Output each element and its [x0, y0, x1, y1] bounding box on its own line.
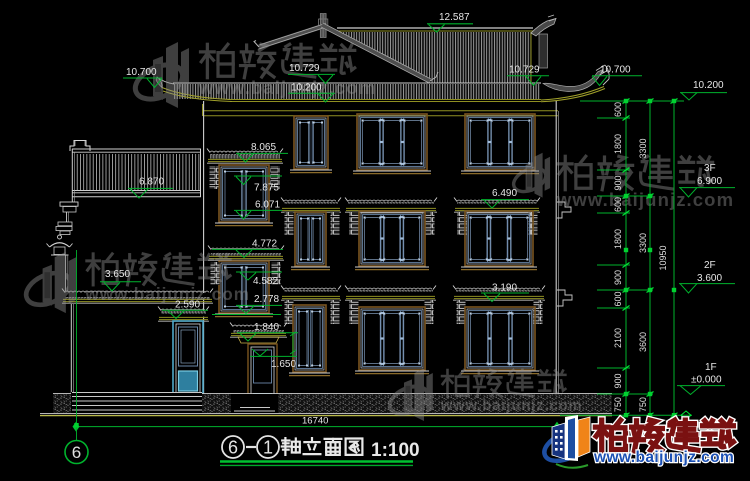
svg-text:4.772: 4.772: [252, 239, 277, 250]
svg-text:10.700: 10.700: [126, 67, 157, 78]
svg-text:750: 750: [613, 397, 623, 412]
svg-text:2.590: 2.590: [175, 300, 200, 311]
svg-text:1800: 1800: [613, 134, 623, 154]
svg-text:3.650: 3.650: [105, 269, 130, 280]
svg-text:3300: 3300: [638, 138, 648, 158]
svg-text:8.065: 8.065: [251, 142, 276, 153]
svg-text:10.729: 10.729: [289, 63, 320, 74]
svg-text:900: 900: [613, 270, 623, 285]
svg-text:6: 6: [72, 443, 81, 462]
svg-text:3F: 3F: [704, 163, 716, 174]
svg-text:10.700: 10.700: [600, 65, 631, 76]
svg-text:2F: 2F: [704, 260, 716, 271]
svg-text:600: 600: [613, 102, 623, 117]
svg-text:10950: 10950: [658, 245, 668, 270]
svg-text:7.875: 7.875: [254, 183, 279, 194]
svg-text:16740: 16740: [302, 416, 328, 427]
svg-text:1: 1: [263, 438, 273, 458]
svg-text:3300: 3300: [638, 233, 648, 253]
svg-text:6.071: 6.071: [255, 200, 280, 211]
svg-text:12.587: 12.587: [439, 12, 470, 23]
svg-text:600: 600: [613, 291, 623, 306]
svg-text:1.650: 1.650: [271, 359, 296, 370]
svg-text:900: 900: [613, 175, 623, 190]
svg-text:6.900: 6.900: [697, 176, 722, 187]
svg-text:www.baijunjz.com: www.baijunjz.com: [84, 284, 250, 304]
svg-text:600: 600: [613, 197, 623, 212]
svg-text:4.582: 4.582: [253, 276, 278, 287]
svg-text:6: 6: [228, 438, 238, 458]
svg-text:10.729: 10.729: [509, 65, 540, 76]
svg-text:www.baijunjz.com: www.baijunjz.com: [198, 77, 376, 98]
svg-text:1:100: 1:100: [371, 440, 420, 461]
svg-text:900: 900: [613, 373, 623, 388]
svg-text:1.840: 1.840: [254, 322, 279, 333]
svg-text:3.600: 3.600: [697, 273, 722, 284]
svg-text:2100: 2100: [613, 328, 623, 348]
svg-text:6.490: 6.490: [492, 188, 517, 199]
svg-text:1F: 1F: [705, 362, 717, 373]
svg-text:2.778: 2.778: [254, 294, 279, 305]
svg-text:www.baijunjz.com: www.baijunjz.com: [440, 398, 583, 414]
svg-text:3.190: 3.190: [492, 283, 517, 294]
svg-text:3600: 3600: [638, 332, 648, 352]
svg-text:1800: 1800: [613, 229, 623, 249]
svg-text:6.870: 6.870: [139, 177, 164, 188]
svg-text:±0.000: ±0.000: [691, 375, 722, 386]
svg-text:www.baijunjz.com: www.baijunjz.com: [593, 449, 734, 466]
svg-text:10.200: 10.200: [693, 80, 724, 91]
svg-text:10.200: 10.200: [291, 83, 322, 94]
svg-text:www.baijunjz.com: www.baijunjz.com: [556, 189, 734, 210]
svg-text:750: 750: [638, 397, 648, 412]
